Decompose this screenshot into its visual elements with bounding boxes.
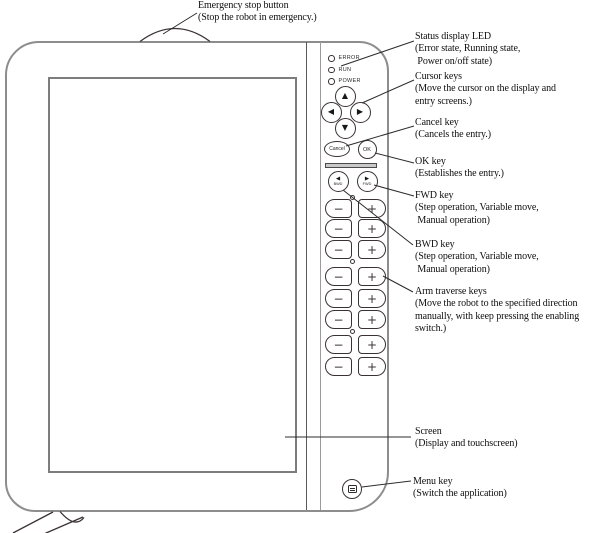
leader-emergency-stop — [163, 13, 197, 34]
traverse-minus-key-5[interactable]: − — [325, 289, 352, 308]
led-power: POWER — [328, 78, 361, 85]
panel-divider-bar — [325, 163, 377, 168]
led-run: RUN — [328, 67, 351, 74]
callout-ok-key: OK key (Establishes the entry.) — [415, 156, 504, 181]
arrow-right-icon: ▶ — [357, 108, 363, 116]
power-led-label: POWER — [339, 78, 361, 84]
bezel-divider-line — [306, 42, 307, 510]
cursor-down-key[interactable]: ▼ — [335, 118, 356, 139]
traverse-group2-dot — [350, 259, 355, 264]
bwd-key-label: BWD — [334, 182, 343, 186]
traverse-minus-key-1[interactable]: − — [325, 199, 352, 218]
cable — [13, 512, 84, 533]
callout-menu-key: Menu key (Switch the application) — [413, 476, 507, 501]
traverse-minus-key-8[interactable]: − — [325, 357, 352, 376]
fwd-key[interactable]: ▶ FWD — [357, 171, 378, 192]
ok-key[interactable]: OK — [358, 140, 377, 159]
traverse-plus-key-8[interactable]: + — [358, 357, 386, 376]
pendant-diagram: ERROR RUN POWER ▲ ◀ ▶ ▼ Cancel OK ◀ BWD … — [0, 0, 600, 533]
menu-icon — [348, 485, 357, 493]
traverse-plus-key-7[interactable]: + — [358, 335, 386, 354]
callout-screen: Screen (Display and touchscreen) — [415, 426, 517, 451]
arrow-left-icon: ◀ — [328, 108, 334, 116]
screen[interactable] — [48, 77, 297, 473]
arrow-up-icon: ▲ — [342, 92, 348, 100]
callout-cursor-keys: Cursor keys (Move the cursor on the disp… — [415, 71, 556, 108]
callout-cancel-key: Cancel key (Cancels the entry.) — [415, 117, 491, 142]
traverse-minus-key-6[interactable]: − — [325, 310, 352, 329]
cursor-right-key[interactable]: ▶ — [350, 102, 371, 123]
traverse-plus-key-5[interactable]: + — [358, 289, 386, 308]
traverse-plus-key-4[interactable]: + — [358, 267, 386, 286]
callout-fwd-key: FWD key (Step operation, Variable move, … — [415, 190, 539, 227]
led-error: ERROR — [328, 55, 360, 62]
callout-arm-traverse: Arm traverse keys (Move the robot to the… — [415, 286, 579, 335]
traverse-minus-key-3[interactable]: − — [325, 240, 352, 259]
error-led-icon — [328, 55, 335, 62]
callout-emergency-stop: Emergency stop button (Stop the robot in… — [198, 0, 317, 25]
menu-key[interactable] — [342, 479, 362, 499]
error-led-label: ERROR — [339, 55, 360, 61]
traverse-minus-key-4[interactable]: − — [325, 267, 352, 286]
arrow-down-icon: ▼ — [342, 124, 348, 132]
traverse-plus-key-1[interactable]: + — [358, 199, 386, 218]
traverse-plus-key-6[interactable]: + — [358, 310, 386, 329]
traverse-minus-key-7[interactable]: − — [325, 335, 352, 354]
run-led-label: RUN — [339, 67, 352, 73]
cancel-key[interactable]: Cancel — [324, 141, 350, 157]
callout-status-led: Status display LED (Error state, Running… — [415, 31, 520, 68]
emergency-stop-button[interactable] — [140, 29, 210, 42]
bwd-key[interactable]: ◀ BWD — [328, 171, 349, 192]
run-led-icon — [328, 67, 335, 74]
traverse-plus-key-3[interactable]: + — [358, 240, 386, 259]
power-led-icon — [328, 78, 335, 85]
fwd-key-label: FWD — [363, 182, 372, 186]
callout-bwd-key: BWD key (Step operation, Variable move, … — [415, 239, 539, 276]
traverse-plus-key-2[interactable]: + — [358, 219, 386, 238]
traverse-group3-dot — [350, 329, 355, 334]
traverse-minus-key-2[interactable]: − — [325, 219, 352, 238]
